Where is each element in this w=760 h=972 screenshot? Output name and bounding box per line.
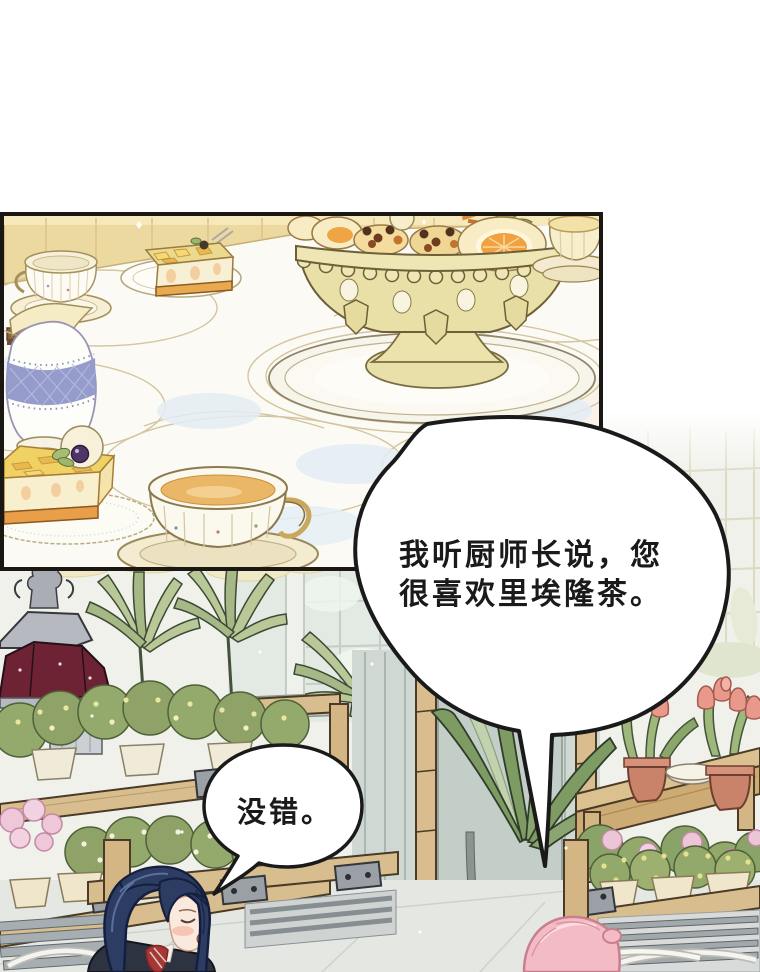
speech-bubble-reply-text: 没错。	[237, 789, 333, 831]
speech-line-1: 我听厨师长说，您	[399, 536, 663, 575]
speech-line-2: 很喜欢里埃隆茶。	[399, 575, 663, 614]
speech-bubble-main-text: 我听厨师长说，您 很喜欢里埃隆茶。	[399, 536, 663, 614]
comic-page: 我听厨师长说，您 很喜欢里埃隆茶。 没错。	[0, 0, 760, 972]
speech-bubbles-layer	[0, 0, 760, 972]
speech-bubble-main	[355, 417, 729, 866]
